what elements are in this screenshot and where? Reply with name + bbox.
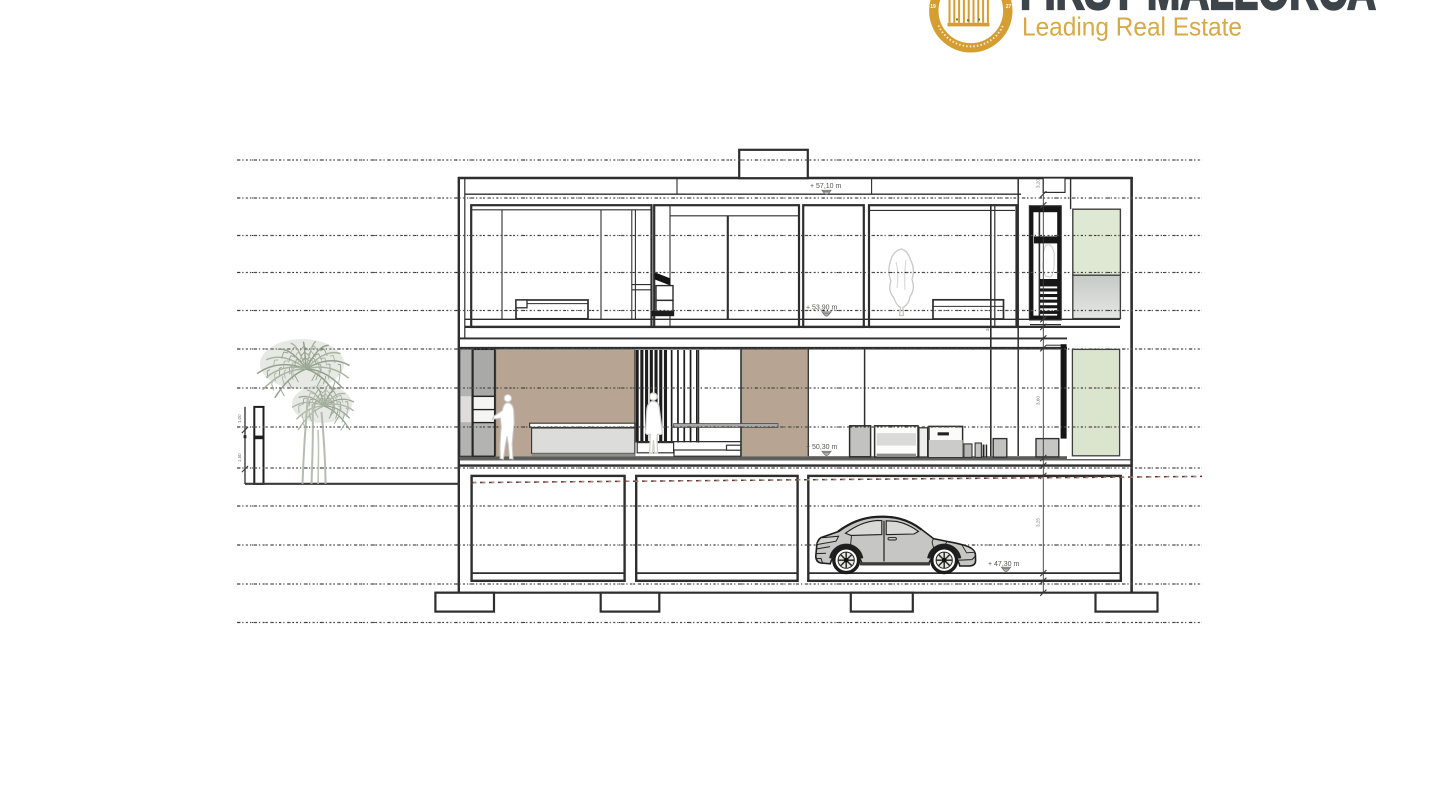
svg-text:1,50: 1,50 — [237, 453, 242, 462]
svg-text:1,00: 1,00 — [237, 414, 242, 423]
svg-text:+ 57,10 m: + 57,10 m — [810, 183, 841, 190]
svg-text:3,60: 3,60 — [1036, 396, 1041, 405]
svg-text:Leading Real Estate: Leading Real Estate — [1022, 14, 1242, 42]
svg-text:+ 50,30 m: + 50,30 m — [806, 444, 837, 451]
svg-text:27: 27 — [1006, 4, 1012, 10]
svg-text:3,25: 3,25 — [1036, 518, 1041, 527]
svg-text:19: 19 — [930, 4, 936, 10]
svg-text:3,20: 3,20 — [1036, 179, 1041, 188]
svg-text:3: 3 — [985, 328, 990, 331]
